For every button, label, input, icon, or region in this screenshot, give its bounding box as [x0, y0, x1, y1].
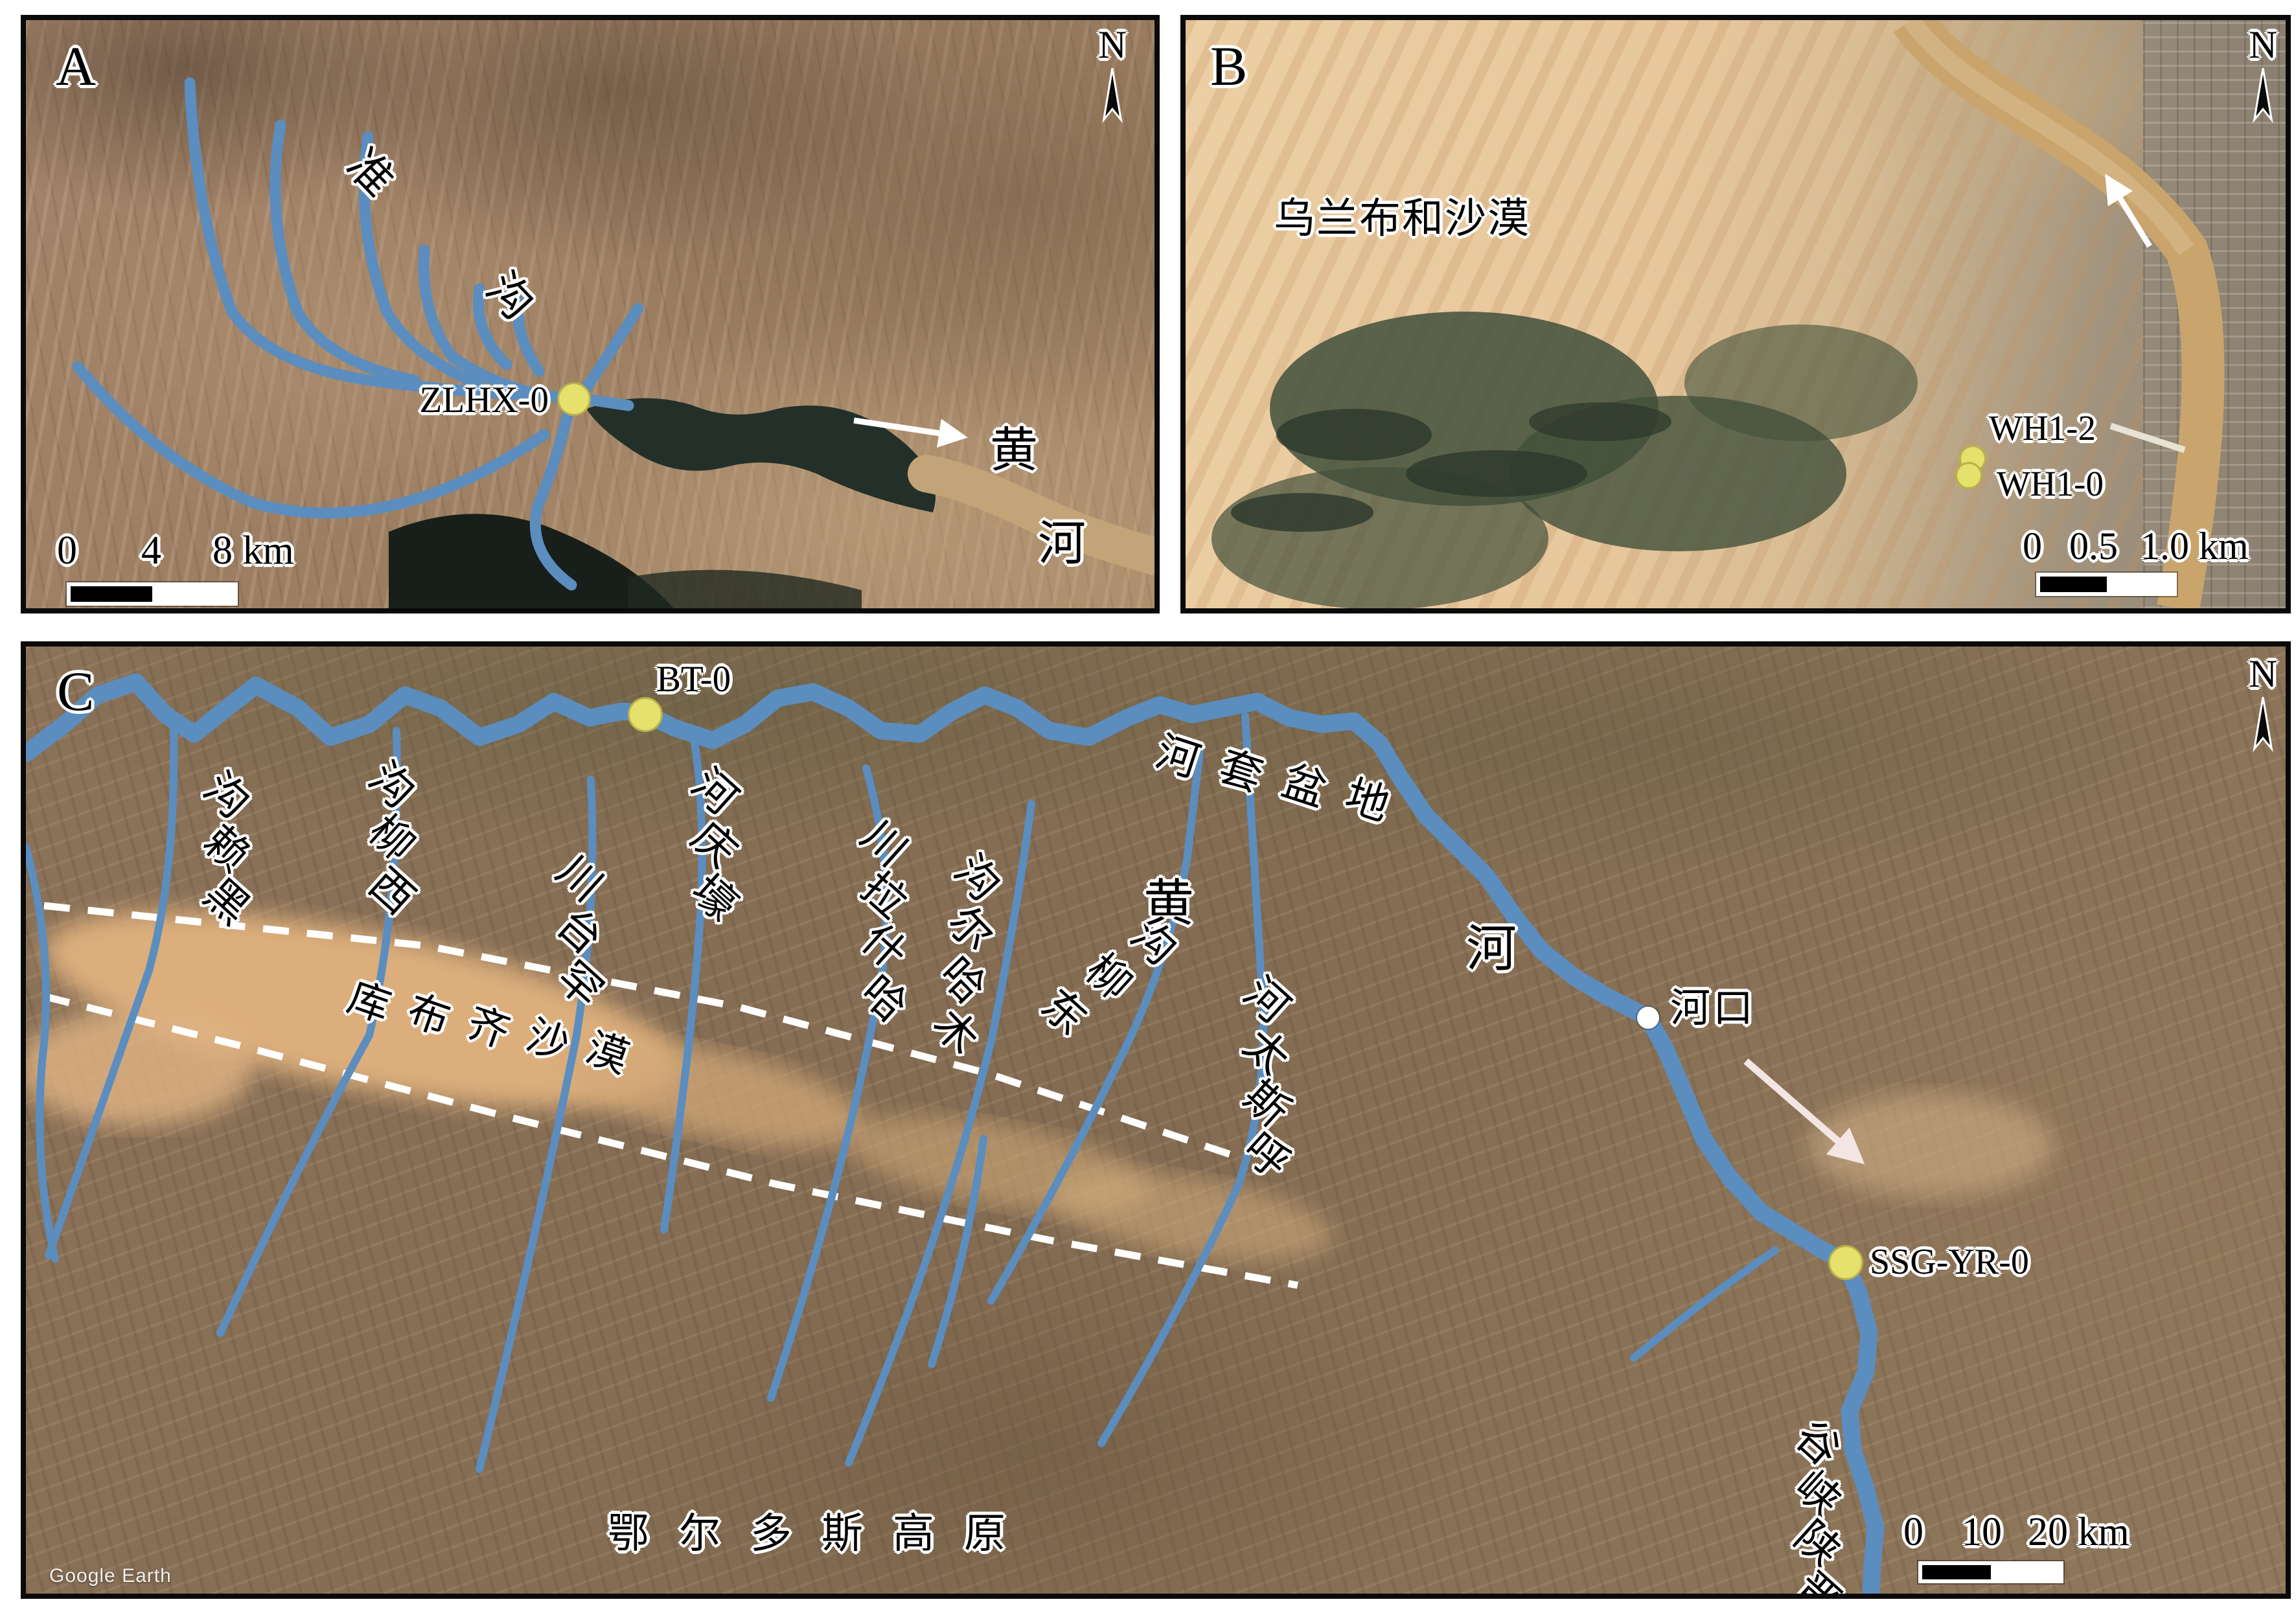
north-letter-b: N	[2240, 25, 2286, 64]
panel-c: C BT-0 河套盆地 沟赖黑 沟柳西 川台罕 河庆壕 川拉什哈 沟尔哈木 东柳…	[21, 641, 2291, 1599]
panel-b-tag: B	[1210, 38, 1247, 94]
tributary-label-haoqinghe: 河庆壕	[693, 771, 735, 920]
sample-site-label-ssg: SSG-YR-0	[1870, 1244, 2029, 1280]
sample-site-label-bt0: BT-0	[656, 661, 731, 698]
ordos-plateau-label: 鄂尔多斯高原	[608, 1513, 1035, 1555]
jinshaan-gorge-label: 谷峡陕晋	[1796, 1423, 1839, 1599]
sample-dot-wh1-0	[1955, 462, 1982, 489]
panel-a: A 准 沟 ZLHX-0 黄 河 0 4 8 km N	[21, 15, 1160, 613]
google-earth-watermark: Google Earth	[49, 1565, 172, 1587]
tributary-label-hantaichuan: 川台罕	[558, 858, 601, 1007]
north-arrow-icon	[2249, 694, 2277, 754]
tributary-label-husitaihe: 河太斯呼	[1245, 979, 1287, 1178]
north-letter-c: N	[2240, 654, 2286, 693]
scale-c-0: 0	[1903, 1512, 1923, 1552]
sample-site-label-wh1-0: WH1-0	[1997, 466, 2104, 501]
scale-c-20km: 20 km	[2028, 1512, 2130, 1552]
panel-a-tag: A	[56, 38, 96, 94]
north-arrow-icon	[2249, 65, 2277, 125]
panel-c-tag: C	[57, 663, 94, 719]
tributary-label-xiliugou: 沟柳西	[370, 764, 413, 913]
scale-b-10km: 1.0 km	[2141, 527, 2249, 566]
yellow-river-char-huang: 黄	[990, 427, 1038, 475]
reservoir-water	[586, 398, 936, 512]
scale-bar-a	[67, 582, 238, 606]
dark-shore	[628, 570, 862, 608]
sample-site-label-wh1-2: WH1-2	[1989, 410, 2096, 446]
hekou-label: 河口	[1670, 989, 1756, 1029]
scale-c-10: 10	[1962, 1512, 2002, 1552]
scale-bar-b	[2036, 573, 2177, 596]
scale-bar-c	[1918, 1561, 2063, 1583]
yellow-river-char-he: 河	[1466, 924, 1517, 974]
scale-a-8km: 8 km	[212, 531, 294, 571]
yellow-river-char-huang: 黄	[1143, 878, 1194, 929]
panel-b-map-art	[1186, 20, 2286, 608]
panel-b: B 乌兰布和沙漠 WH1-2 WH1-0 0 0.5 1.0 km N	[1180, 15, 2291, 613]
north-letter-a: N	[1090, 25, 1135, 64]
tributary-label-heilaigou: 沟赖黑	[205, 775, 247, 924]
yellow-river-char-he: 河	[1038, 520, 1086, 568]
north-arrow-a: N	[1090, 25, 1135, 128]
north-arrow-icon	[1098, 65, 1127, 125]
hekou-dot	[1637, 1007, 1659, 1029]
ulan-buh-desert-label: 乌兰布和沙漠	[1274, 198, 1530, 240]
north-arrow-c: N	[2240, 654, 2286, 757]
satellite-figure: A 准 沟 ZLHX-0 黄 河 0 4 8 km N	[0, 0, 2296, 1615]
yellow-river-natural	[1911, 20, 2203, 608]
sample-dot-ssg	[1828, 1245, 1863, 1280]
sample-site-label-zlhx: ZLHX-0	[379, 382, 549, 418]
north-arrow-b: N	[2240, 25, 2286, 128]
dam-structure	[2109, 423, 2185, 453]
scale-b-0: 0	[2023, 527, 2042, 566]
scale-a-0: 0	[57, 531, 77, 571]
sample-dot-bt0	[628, 697, 663, 732]
tributary-label-hashilachuan: 川拉什哈	[862, 823, 905, 1021]
scale-b-05: 0.5	[2069, 527, 2118, 566]
panel-a-map-art	[26, 20, 1154, 608]
scale-a-4: 4	[141, 531, 161, 571]
sample-dot-zlhx	[557, 382, 591, 416]
